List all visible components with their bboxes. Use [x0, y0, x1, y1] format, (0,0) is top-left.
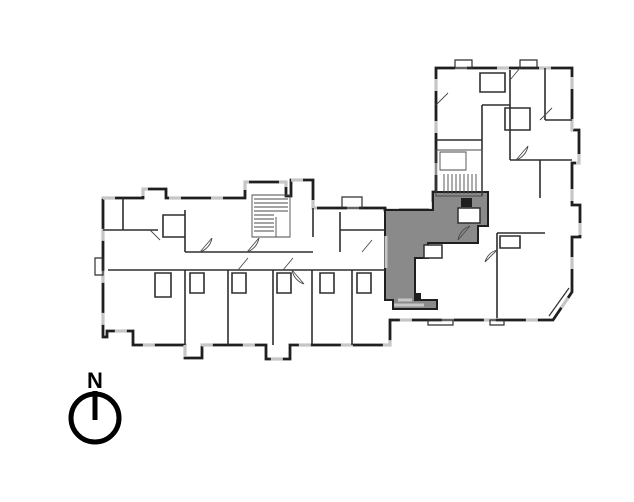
- building-outline: [103, 68, 580, 359]
- floor-plan-svg: N: [0, 0, 634, 502]
- floor-plan-page: N: [0, 0, 634, 502]
- north-label: N: [87, 368, 103, 393]
- north-arrow: N: [71, 368, 119, 442]
